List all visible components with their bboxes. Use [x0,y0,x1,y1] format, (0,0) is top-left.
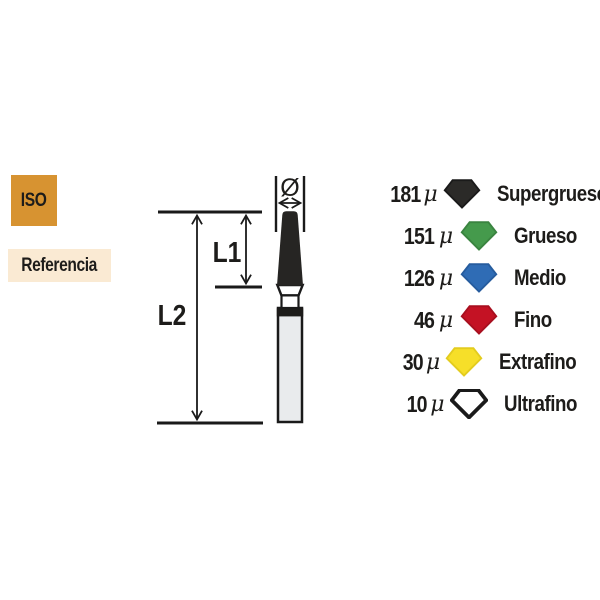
micron-unit-symbol: μ [437,266,455,291]
grit-legend: 181 μ Supergrueso 151 μ Grueso 126 μ [385,173,590,425]
legend-row: 10 μ Ultrafino [385,383,590,425]
diamond-icon [450,389,488,419]
micron-unit-symbol: μ [423,182,437,207]
l1-label: L1 [213,236,242,268]
grit-label: Grueso [514,223,577,249]
product-diagram-page: ISO Referencia L1 L2 Ø [0,0,600,600]
legend-row: 151 μ Grueso [385,215,590,257]
micron-unit-symbol: μ [437,308,455,333]
bur-dimension-drawing: L1 L2 Ø [140,165,320,435]
legend-row: 46 μ Fino [385,299,590,341]
grit-label: Fino [514,307,552,333]
diamond-icon [445,347,483,377]
iso-badge: ISO [11,175,57,226]
grit-label: Medio [514,265,566,291]
grit-value: 181 [390,181,420,208]
grit-value: 126 [392,265,434,292]
legend-row: 30 μ Extrafino [385,341,590,383]
grit-value: 46 [392,307,434,334]
bur-neck [282,295,299,309]
diamond-icon [460,263,498,293]
diamond-icon [460,305,498,335]
referencia-badge: Referencia [8,249,111,282]
micron-unit-symbol: μ [437,224,455,249]
grit-label: Supergrueso [497,181,600,207]
bur-neck-taper [277,285,302,295]
legend-row: 126 μ Medio [385,257,590,299]
legend-row: 181 μ Supergrueso [385,173,590,215]
grit-value: 30 [391,349,423,376]
diamond-icon [460,221,498,251]
micron-unit-symbol: μ [426,350,440,375]
diameter-symbol: Ø [280,174,299,202]
diamond-icon [443,179,481,209]
grit-label: Extrafino [499,349,576,375]
grit-value: 151 [392,223,434,250]
bur-head [277,211,303,285]
l2-label: L2 [158,299,187,331]
bur-collar-band [277,308,303,316]
iso-badge-label: ISO [21,190,47,212]
referencia-badge-label: Referencia [22,255,98,277]
bur-shaft [278,308,302,422]
grit-value: 10 [391,391,426,418]
grit-label: Ultrafino [504,391,577,417]
micron-unit-symbol: μ [430,392,445,417]
